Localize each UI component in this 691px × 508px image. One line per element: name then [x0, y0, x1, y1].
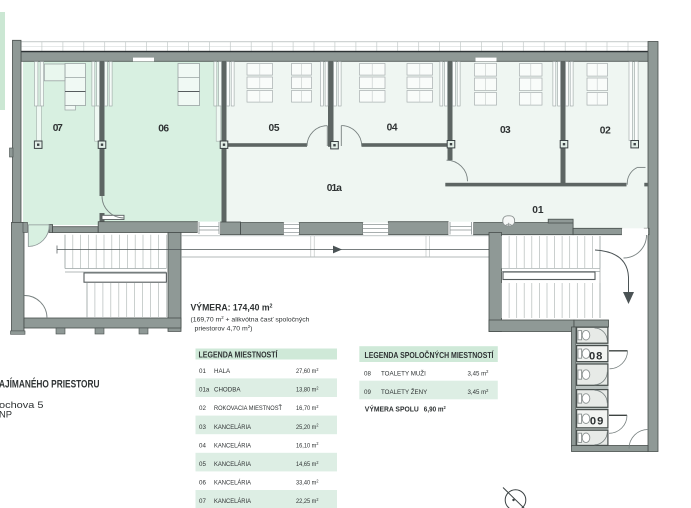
svg-text:05: 05 [269, 123, 280, 134]
svg-text:02: 02 [600, 126, 611, 137]
svg-text:KANCELÁRIA: KANCELÁRIA [214, 498, 252, 505]
svg-text:04: 04 [387, 123, 398, 134]
svg-text:14,65 m2: 14,65 m2 [296, 460, 319, 468]
svg-text:07: 07 [199, 498, 206, 505]
svg-text:07: 07 [53, 123, 63, 134]
svg-text:01a: 01a [199, 387, 210, 394]
svg-text:TOALETY MUŽI: TOALETY MUŽI [381, 369, 426, 377]
svg-text:HALA: HALA [214, 368, 231, 375]
svg-text:01: 01 [199, 368, 206, 375]
svg-text:09: 09 [364, 389, 371, 396]
svg-text:08: 08 [589, 351, 602, 363]
svg-text:13,80 m2: 13,80 m2 [296, 385, 319, 393]
svg-text:02: 02 [199, 405, 206, 412]
svg-text:KANCELÁRIA: KANCELÁRIA [214, 442, 252, 449]
svg-text:08: 08 [364, 370, 371, 377]
svg-text:3,45 m2: 3,45 m2 [468, 388, 490, 396]
svg-text:16,10 m2: 16,10 m2 [296, 441, 319, 449]
svg-text:priestorov 4,70 m2): priestorov 4,70 m2) [195, 324, 253, 332]
svg-text:LEGENDA MIESTNOSTÍ: LEGENDA MIESTNOSTÍ [199, 349, 279, 359]
svg-text:KANCELÁRIA: KANCELÁRIA [214, 424, 252, 431]
svg-text:LEGENDA SPOLOČNÝCH MIESTNOSTÍ: LEGENDA SPOLOČNÝCH MIESTNOSTÍ [365, 349, 495, 360]
svg-text:33,40 m2: 33,40 m2 [296, 478, 319, 486]
svg-text:AJÍMANÉHO PRIESTORU: AJÍMANÉHO PRIESTORU [0, 377, 100, 390]
svg-text:04: 04 [199, 442, 206, 449]
svg-text:VÝMERA: 174,40 m2: VÝMERA: 174,40 m2 [191, 302, 273, 313]
svg-text:03: 03 [500, 125, 511, 136]
svg-text:3,45 m2: 3,45 m2 [468, 369, 490, 377]
svg-text:CHODBA: CHODBA [214, 387, 241, 394]
svg-text:6,90 m2: 6,90 m2 [424, 405, 446, 414]
svg-text:01: 01 [532, 205, 544, 216]
svg-text:22,25 m2: 22,25 m2 [296, 497, 319, 505]
svg-text:KANCELÁRIA: KANCELÁRIA [214, 461, 252, 468]
svg-text:(169,70 m2 + alikvótna časť s: (169,70 m2 + alikvótna časť spoločných [191, 315, 310, 323]
svg-text:09: 09 [590, 416, 603, 428]
svg-text:TOALETY ŽENY: TOALETY ŽENY [381, 388, 427, 396]
svg-text:25,20 m2: 25,20 m2 [296, 423, 319, 431]
svg-text:06: 06 [158, 124, 169, 135]
svg-text:NP: NP [0, 408, 12, 419]
svg-text:01a: 01a [327, 183, 343, 194]
svg-text:16,70 m2: 16,70 m2 [296, 404, 319, 412]
svg-text:06: 06 [199, 480, 206, 487]
svg-text:VÝMERA SPOLU: VÝMERA SPOLU [365, 405, 419, 414]
svg-text:05: 05 [199, 461, 206, 468]
svg-text:KANCELÁRIA: KANCELÁRIA [214, 480, 252, 487]
svg-text:27,60 m2: 27,60 m2 [296, 367, 319, 375]
svg-text:ROKOVACIA MIESTNOSŤ: ROKOVACIA MIESTNOSŤ [214, 404, 282, 412]
svg-text:03: 03 [199, 424, 206, 431]
